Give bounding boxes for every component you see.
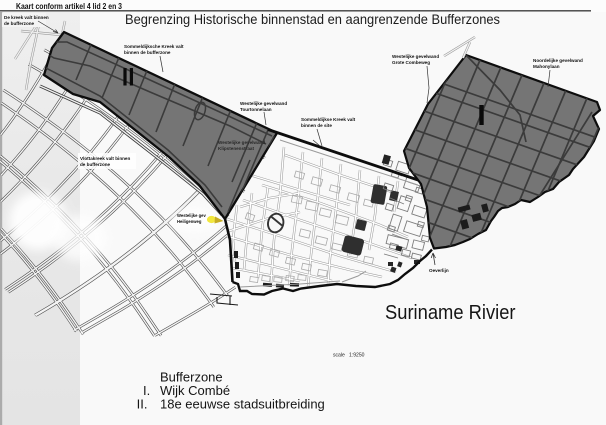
svg-text:Westelijke gevelwand: Westelijke gevelwand (218, 140, 265, 145)
svg-text:18e eeuwse stadsuitbreiding: 18e eeuwse stadsuitbreiding (160, 396, 325, 411)
svg-text:II.: II. (137, 396, 148, 411)
svg-text:Vlottakreek valt binnen: Vlottakreek valt binnen (80, 156, 130, 161)
svg-text:Klipstenenstraat: Klipstenenstraat (218, 146, 254, 151)
svg-text:Mahonylaan: Mahonylaan (533, 64, 560, 69)
svg-text:Westelijke gev: Westelijke gev (177, 213, 206, 218)
svg-text:binnen de bufferzone: binnen de bufferzone (124, 50, 171, 55)
svg-text:Noordelijke gevelwand: Noordelijke gevelwand (533, 58, 583, 63)
svg-text:De kreek valt binnen: De kreek valt binnen (4, 15, 49, 20)
svg-text:Suriname Rivier: Suriname Rivier (385, 302, 516, 324)
svg-text:scale 1:9250: scale 1:9250 (333, 353, 365, 359)
svg-text:Oeverlijn: Oeverlijn (429, 268, 449, 273)
svg-text:Sommeldijksche Kreek valt: Sommeldijksche Kreek valt (124, 44, 184, 49)
svg-text:Kaart conform artikel 4 lid 2: Kaart conform artikel 4 lid 2 en 3 (16, 1, 122, 11)
svg-text:Westelijke gevelwand: Westelijke gevelwand (392, 54, 439, 59)
svg-text:Westelijke gevelwand: Westelijke gevelwand (240, 101, 287, 106)
svg-text:de bufferzone: de bufferzone (80, 162, 111, 167)
svg-text:Grote Combeweg: Grote Combeweg (392, 60, 430, 65)
svg-text:Heiligenweg: Heiligenweg (177, 219, 202, 224)
svg-text:Begrenzing Historische binnens: Begrenzing Historische binnenstad en aan… (125, 12, 500, 27)
svg-text:Tourtonnelaan: Tourtonnelaan (240, 107, 272, 112)
svg-text:de bufferzone: de bufferzone (4, 21, 35, 26)
svg-text:binnen de site: binnen de site (301, 123, 332, 128)
svg-text:Sommeldijkse Kreek valt: Sommeldijkse Kreek valt (301, 117, 356, 122)
